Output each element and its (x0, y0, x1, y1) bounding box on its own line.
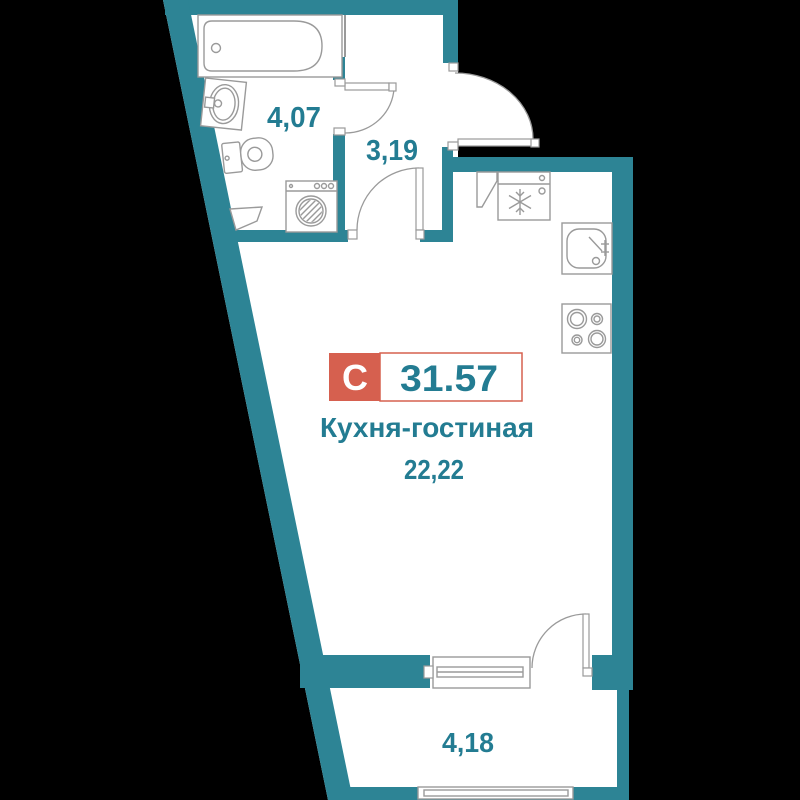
wall-right (612, 157, 633, 657)
wall-kitchen-top (443, 157, 633, 172)
bathroom-door-leaf-cap (389, 83, 396, 91)
balcony-window-icon (433, 657, 530, 688)
wall-hall-bottom (420, 230, 453, 242)
bathroom-door-jamb-bottom (334, 128, 345, 135)
living-door-jamb-left (348, 230, 357, 239)
entry-door-leaf (458, 139, 533, 146)
balcony-window-jamb (424, 666, 433, 678)
kitchen-sink-icon (562, 223, 612, 274)
kitchen-living-area-label: 22,22 (404, 454, 464, 485)
kitchen-living-name-label: Кухня-гостиная (320, 412, 534, 443)
wall-living-balcony (300, 655, 430, 688)
hallway-area-label: 3,19 (366, 135, 418, 167)
balcony-area-label: 4,18 (442, 727, 494, 758)
entry-door-jamb-top (449, 63, 458, 71)
wall-entry-side (443, 0, 458, 63)
exterior-window-icon (418, 787, 573, 799)
washing-machine-icon (286, 181, 337, 232)
living-door-leaf (416, 168, 423, 230)
unit-total-area: 31.57 (400, 358, 498, 399)
living-door-jamb-right (416, 230, 424, 239)
entry-door-swing-area (455, 73, 533, 139)
balcony-door-jamb (583, 668, 592, 676)
entry-door-jamb-right (531, 139, 539, 147)
floorplan-svg: С 31.57 4,07 3,19 Кухня-гостиная 22,22 4… (0, 0, 800, 800)
wall-top (165, 0, 458, 15)
stove-icon (562, 304, 611, 353)
bathroom-area-label: 4,07 (267, 102, 321, 134)
unit-badge: С 31.57 (329, 353, 522, 401)
wall-right-step (592, 655, 633, 690)
wall-balcony-right (617, 690, 629, 790)
fridge-icon (498, 172, 550, 220)
entry-door-jamb-bottom (448, 142, 458, 150)
balcony-door-leaf (583, 614, 589, 668)
unit-type-label: С (342, 357, 368, 398)
sink-icon (201, 78, 247, 130)
bathtub-icon (198, 15, 342, 77)
bathroom-door-jamb-top (335, 79, 345, 86)
bathroom-door-leaf (345, 83, 389, 90)
floorplan-canvas: С 31.57 4,07 3,19 Кухня-гостиная 22,22 4… (0, 0, 800, 800)
